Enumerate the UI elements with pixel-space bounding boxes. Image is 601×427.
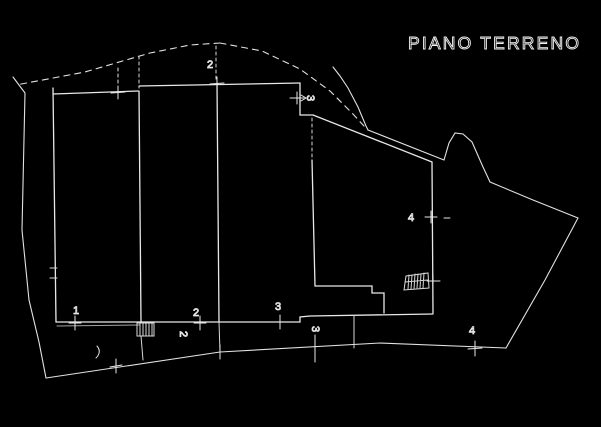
boundary-left-edge — [22, 93, 46, 378]
boundary-upper-diagonal — [368, 130, 444, 160]
right-wall — [432, 162, 433, 313]
hatched-box-hatching — [140, 323, 152, 336]
drawing-title: PIANO TERRENO — [408, 33, 581, 53]
boundary-dashed-left — [16, 43, 220, 85]
axis-1-top-cross — [111, 86, 125, 99]
axis-2-top-cross — [210, 77, 224, 90]
top-wall-left-section — [53, 91, 138, 94]
axis-3-top-cross — [290, 92, 306, 104]
boundary-top-left-corner — [13, 77, 25, 93]
axis-label-bottom-4: 4 — [469, 325, 476, 337]
axis-1-boundary-cross — [110, 359, 122, 373]
labels: PIANO TERRENO 2 3 4 1 2 2 3 3 4 — [73, 33, 581, 338]
boundary-notch — [444, 133, 490, 182]
floor-plan-canvas: PIANO TERRENO 2 3 4 1 2 2 3 3 4 — [0, 0, 601, 427]
left-wall — [53, 88, 56, 322]
step-wall-bottom — [315, 286, 384, 313]
axis-label-bottom-3-rotated: 3 — [309, 326, 321, 333]
diagonal-wall — [313, 115, 432, 162]
bottom-wall-double-line — [57, 325, 140, 326]
boundary-upper-right-edge — [490, 182, 578, 218]
axis-1-bottom-cross — [69, 316, 81, 330]
scanned-floor-plan-page: PIANO TERRENO 2 3 4 1 2 2 3 3 4 — [0, 0, 601, 427]
axis-1-boundary-paren — [96, 346, 99, 358]
boundary-bottom-edge — [46, 343, 506, 378]
building-walls — [50, 46, 433, 360]
bottom-wall-right — [310, 314, 433, 316]
divider-1 — [139, 91, 141, 322]
axis-label-top-3: 3 — [304, 95, 316, 102]
axis-label-right-4: 4 — [408, 212, 415, 224]
axis-3-bottom-cross — [274, 315, 286, 329]
hatched-box-symbol-bottom — [137, 323, 154, 336]
axis-label-top-2: 2 — [207, 59, 214, 71]
axis-markers — [69, 68, 482, 373]
divider-1-extension — [141, 336, 143, 360]
site-boundary — [13, 43, 578, 378]
axis-label-bottom-2: 2 — [193, 307, 200, 319]
axis-label-bottom-2-rotated: 2 — [177, 331, 189, 338]
axis-4-right-cross — [425, 211, 450, 223]
axis-4-bottom-cross — [468, 341, 482, 356]
stairs-symbol-right — [404, 273, 429, 290]
divider-2 — [217, 83, 219, 322]
axis-label-bottom-3: 3 — [275, 301, 282, 313]
wall-3 — [312, 160, 315, 286]
bottom-wall-main — [56, 316, 310, 322]
boundary-right-edge — [506, 218, 578, 348]
axis-label-bottom-1: 1 — [73, 305, 80, 317]
